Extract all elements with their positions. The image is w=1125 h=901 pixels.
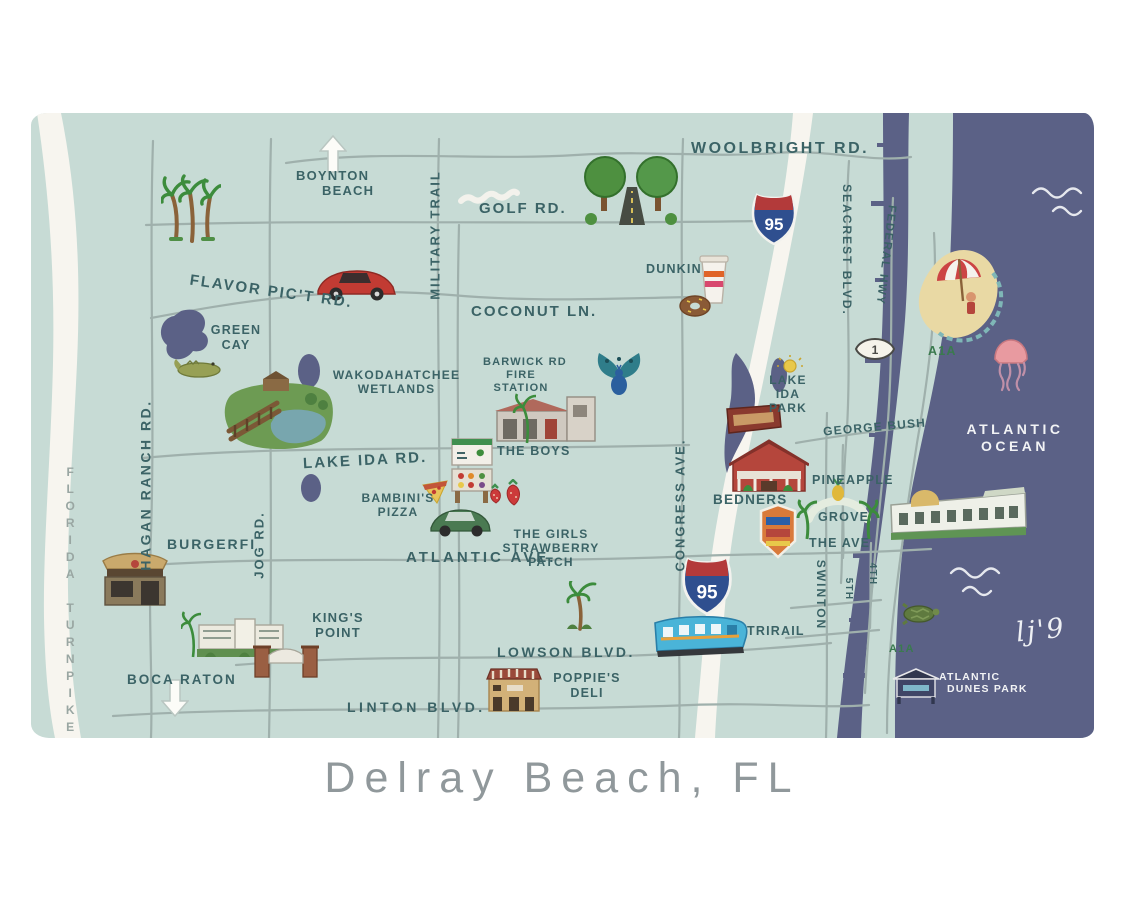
place-label-kings-point: KING'S POINT bbox=[303, 610, 373, 641]
road-label-golf: GOLF RD. bbox=[479, 200, 567, 218]
boynton-line2: BEACH bbox=[296, 183, 374, 198]
sea-turtle-icon bbox=[901, 603, 941, 625]
donut-icon bbox=[679, 295, 711, 317]
barwick-line1: BARWICK RD bbox=[483, 356, 559, 369]
road-label-the-ave: THE AVE bbox=[809, 536, 870, 551]
dunes-line1: ATLANTIC bbox=[939, 671, 1028, 683]
street-sign-icon bbox=[757, 503, 799, 559]
road-label-lowson: LOWSON BLVD. bbox=[497, 644, 635, 661]
i95-shield-north-icon: 95 bbox=[751, 193, 797, 245]
road-label-fifth: 5TH bbox=[842, 578, 854, 601]
road-label-congress: CONGRESS AVE. bbox=[672, 439, 687, 572]
place-label-boca-raton: BOCA RATON bbox=[127, 672, 237, 688]
poppies-line1: POPPIE'S bbox=[545, 671, 629, 686]
svg-text:1: 1 bbox=[872, 343, 879, 357]
boynton-line1: BOYNTON bbox=[296, 168, 374, 183]
alligator-icon bbox=[173, 356, 223, 380]
place-label-lake-ida-park: LAKE IDA PARK bbox=[762, 373, 814, 415]
place-label-barwick-fire-station: BARWICK RD FIRE STATION bbox=[483, 356, 559, 395]
beach-umbrella-icon bbox=[933, 253, 987, 319]
beachfront-building-icon bbox=[887, 483, 1029, 541]
bambinis-line2: PIZZA bbox=[361, 505, 435, 519]
road-label-a1a-north: A1A bbox=[928, 344, 957, 359]
commuter-train-icon bbox=[649, 613, 749, 659]
place-label-burgerfi: BURGERFI bbox=[167, 536, 256, 553]
place-label-grove: GROVE bbox=[818, 510, 869, 525]
place-label-the-boys: THE BOYS bbox=[497, 444, 571, 459]
lake-ida-park-line1: LAKE bbox=[762, 373, 814, 387]
sun-icon bbox=[777, 355, 803, 375]
peacock-icon bbox=[593, 349, 645, 397]
ocean-line2: OCEAN bbox=[959, 438, 1071, 455]
green-cay-line2: CAY bbox=[206, 338, 266, 353]
road-label-seacrest: SEACREST BLVD. bbox=[840, 184, 854, 316]
place-label-pineapple: PINEAPPLE bbox=[812, 473, 894, 488]
girls-line1: THE GIRLS bbox=[501, 527, 601, 541]
place-label-bedners: BEDNERS bbox=[713, 492, 787, 508]
map-title: Delray Beach, FL bbox=[0, 754, 1125, 803]
road-label-fourth: 4TH bbox=[866, 563, 878, 586]
tree-lined-road-icon bbox=[583, 153, 679, 229]
burger-restaurant-icon bbox=[97, 547, 173, 607]
lake-ida-park-line3: PARK bbox=[762, 401, 814, 415]
artist-signature: lj'9 bbox=[1015, 612, 1068, 648]
road-label-coconut: COCONUT LN. bbox=[471, 303, 597, 321]
dunes-line2: DUNES PARK bbox=[939, 683, 1028, 695]
jellyfish-icon bbox=[991, 337, 1031, 393]
road-label-linton: LINTON BLVD. bbox=[347, 699, 486, 716]
kings-line2: POINT bbox=[303, 625, 373, 640]
i95-shield-south-icon: 95 bbox=[681, 557, 733, 615]
road-label-woolbright: WOOLBRIGHT RD. bbox=[691, 140, 869, 159]
lake-ida-park-line2: IDA bbox=[762, 387, 814, 401]
place-label-green-cay: GREEN CAY bbox=[206, 323, 266, 353]
road-label-jog: JOG RD. bbox=[251, 511, 266, 578]
barwick-line2: FIRE bbox=[483, 369, 559, 382]
place-label-wakodahatchee: WAKODAHATCHEE WETLANDS bbox=[329, 368, 464, 396]
road-label-swinton: SWINTON bbox=[814, 560, 828, 630]
ocean-label: ATLANTIC OCEAN bbox=[959, 421, 1071, 454]
road-label-atlantic-ave: ATLANTIC AVE. bbox=[406, 549, 556, 567]
illustrated-map-print: 95 95 1 bbox=[0, 0, 1125, 901]
road-label-hagan-ranch: HAGAN RANCH RD. bbox=[138, 399, 155, 570]
poppies-line2: DELI bbox=[545, 686, 629, 701]
kings-line1: KING'S bbox=[303, 610, 373, 625]
wetlands-boardwalk-icon bbox=[219, 369, 339, 455]
place-label-boynton-beach: BOYNTON BEACH bbox=[296, 168, 374, 199]
ocean-line1: ATLANTIC bbox=[959, 421, 1071, 438]
green-cay-line1: GREEN bbox=[206, 323, 266, 338]
map-area: 95 95 1 bbox=[31, 113, 1094, 738]
svg-text:95: 95 bbox=[765, 215, 784, 234]
deli-building-icon bbox=[485, 665, 543, 713]
place-label-trirail: TRIRAIL bbox=[747, 624, 805, 639]
park-pavilion-icon bbox=[891, 667, 941, 705]
road-label-military-trail: MILITARY TRAIL bbox=[427, 170, 442, 300]
wako-line1: WAKODAHATCHEE bbox=[329, 368, 464, 382]
us1-marker-icon: 1 bbox=[855, 337, 895, 361]
svg-text:95: 95 bbox=[696, 582, 718, 603]
place-label-atlantic-dunes: ATLANTIC DUNES PARK bbox=[939, 671, 1028, 696]
road-label-a1a-south: A1A bbox=[889, 643, 915, 656]
road-label-florida-turnpike: FLORIDA TURNPIKE bbox=[63, 465, 77, 721]
place-label-bambinis-pizza: BAMBINI'S PIZZA bbox=[361, 491, 435, 519]
bambinis-line1: BAMBINI'S bbox=[361, 491, 435, 505]
strawberries-icon bbox=[487, 479, 527, 509]
barwick-line3: STATION bbox=[483, 382, 559, 395]
place-label-poppies-deli: POPPIE'S DELI bbox=[545, 671, 629, 701]
green-car-icon bbox=[427, 501, 493, 539]
palm-trees-icon bbox=[161, 173, 221, 243]
place-label-dunkin: DUNKIN bbox=[646, 262, 702, 277]
entrance-gate-icon bbox=[253, 639, 319, 679]
palm-tree-icon bbox=[561, 581, 599, 631]
wako-line2: WETLANDS bbox=[329, 382, 464, 396]
